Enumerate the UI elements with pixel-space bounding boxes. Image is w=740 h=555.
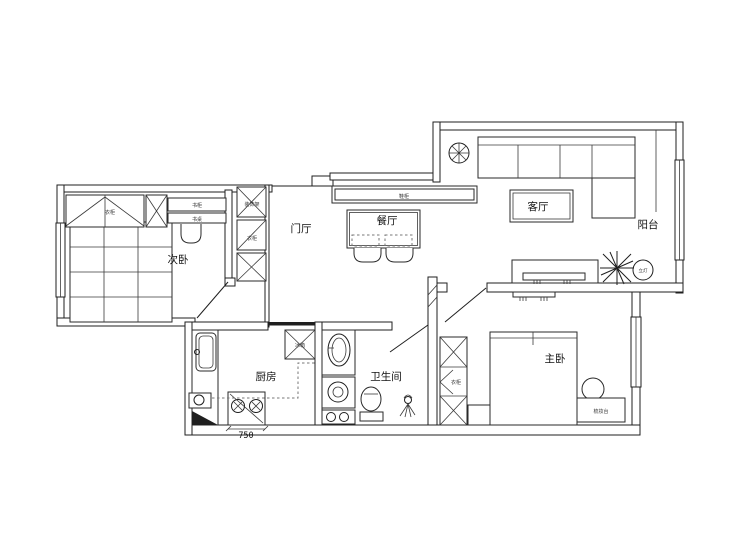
bedroom-wardrobe: 衣柜 <box>66 195 144 227</box>
kitchen: 750 冰箱 厨房 <box>189 330 316 441</box>
stool <box>582 378 604 400</box>
entrance-hall-label: 门厅 <box>291 222 312 235</box>
wall-bathroom-top <box>315 322 392 330</box>
hall-cabinets: 装饰架 衣柜 <box>237 187 266 281</box>
window-bedroom-left <box>56 223 65 297</box>
dining-table: 餐厅 <box>347 210 420 248</box>
master-wardrobe: 衣柜 <box>440 337 467 425</box>
tatami-bed <box>70 222 172 322</box>
door-master-bedroom <box>445 288 486 322</box>
floor-plan-canvas: 衣柜 书柜 书桌 次卧 装饰架 衣柜 门厅 <box>0 0 740 555</box>
stove-dimension-value: 750 <box>238 431 253 441</box>
wall-bath-master-divider <box>428 277 437 425</box>
hand-shower-icon <box>400 395 415 417</box>
living-room-label: 客厅 <box>528 200 549 213</box>
dining-chair-1 <box>354 248 381 262</box>
fridge: 冰箱 <box>285 330 315 359</box>
kitchen-sink <box>195 333 217 371</box>
coffee-table: 客厅 <box>510 190 573 222</box>
wall-living-top <box>437 122 683 130</box>
dining-room-label: 餐厅 <box>377 214 398 227</box>
floor-lamp-label: 立灯 <box>639 267 648 274</box>
bedroom-corner-cabinet <box>146 195 167 227</box>
window-balcony-right <box>675 160 684 260</box>
wall-mb-door-stub <box>437 283 447 292</box>
wall-living-left <box>433 122 440 182</box>
door-bathroom <box>390 325 428 352</box>
wall-dining-top <box>330 173 437 180</box>
fridge-label: 冰箱 <box>295 342 305 349</box>
potted-plant-icon <box>600 251 634 285</box>
toilet <box>360 387 383 421</box>
desk-chair <box>181 224 201 243</box>
hall-cabinet-mid-label: 衣柜 <box>247 235 257 242</box>
floor-lamp: 立灯 <box>633 260 653 280</box>
ceiling-fan-plant-icon <box>449 143 469 163</box>
sofa-chaise <box>592 178 635 218</box>
window-master-right <box>631 317 641 387</box>
bath-vanity <box>322 330 355 375</box>
shoe-cabinet: 鞋柜 <box>332 186 477 203</box>
hall-cabinet-top-label: 装饰架 <box>244 201 259 208</box>
tv-screen <box>523 273 585 280</box>
bookcase: 书柜 <box>168 198 226 211</box>
master-wardrobe-label: 衣柜 <box>451 379 461 386</box>
washing-machine <box>322 377 355 408</box>
entrance-dining: 门厅 鞋柜 餐厅 <box>291 186 478 262</box>
floor-plan-drawing: 衣柜 书柜 书桌 次卧 装饰架 衣柜 门厅 <box>0 0 740 555</box>
desk: 书桌 <box>168 213 226 243</box>
secondary-bedroom-label: 次卧 <box>168 253 189 266</box>
desk-label: 书桌 <box>192 216 202 223</box>
bath-low-cabinet <box>322 410 355 424</box>
dining-chair-2 <box>386 248 413 262</box>
master-bed <box>490 332 577 425</box>
master-tv <box>513 292 555 301</box>
dressing-table: 梳妆台 <box>577 398 625 422</box>
kitchen-sliding-door-rail <box>268 322 315 326</box>
dressing-table-label: 梳妆台 <box>593 408 608 415</box>
master-bedroom: 衣柜 梳妆台 主卧 <box>440 292 625 425</box>
wall-kitchen-left <box>185 322 192 435</box>
balcony-label: 阳台 <box>638 218 659 231</box>
tv-cabinet <box>512 260 598 284</box>
wall-kitchen-bath-divider <box>315 322 322 425</box>
wall-kitchen-top <box>192 322 268 330</box>
balcony: 阳台 <box>638 218 659 231</box>
bedroom-wardrobe-label: 衣柜 <box>105 209 115 216</box>
kitchen-small-appliance <box>189 393 211 408</box>
gas-stove <box>228 392 265 425</box>
shoe-cabinet-label: 鞋柜 <box>399 193 409 200</box>
nightstand <box>468 405 490 425</box>
secondary-bedroom: 衣柜 书柜 书桌 次卧 <box>66 195 226 322</box>
master-bedroom-label: 主卧 <box>545 352 566 365</box>
kitchen-label: 厨房 <box>256 370 277 383</box>
bathroom-label: 卫生间 <box>370 370 402 383</box>
wall-south-mid <box>487 283 683 292</box>
living-room: 客厅 立灯 <box>449 130 656 285</box>
wall-hinge-block <box>225 278 235 286</box>
door-secondary-bedroom <box>197 282 228 318</box>
bookcase-label: 书柜 <box>192 202 202 209</box>
